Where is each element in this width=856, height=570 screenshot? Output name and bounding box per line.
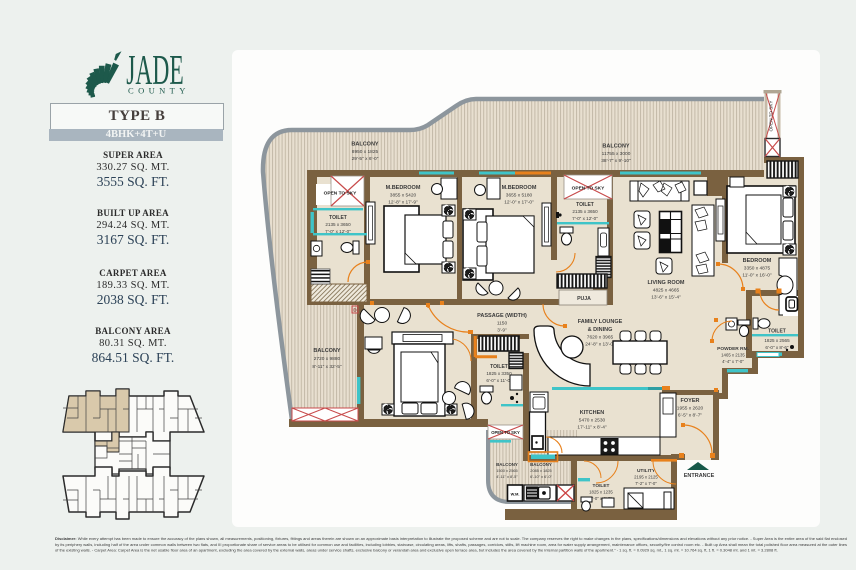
svg-text:LIVING ROOM: LIVING ROOM: [648, 280, 685, 286]
svg-text:TOILET: TOILET: [768, 329, 786, 335]
svg-text:PUJA: PUJA: [577, 296, 591, 302]
svg-text:PASSAGE (WIDTH): PASSAGE (WIDTH): [477, 313, 527, 319]
svg-text:OPEN TO SKY: OPEN TO SKY: [572, 186, 605, 192]
svg-text:1955 x 2620: 1955 x 2620: [677, 406, 704, 412]
svg-text:3855 x 5420: 3855 x 5420: [390, 193, 417, 199]
svg-text:& DINING: & DINING: [588, 327, 613, 333]
svg-text:OPEN TO SKY: OPEN TO SKY: [491, 430, 520, 435]
svg-text:BALCONY: BALCONY: [602, 144, 630, 150]
svg-text:4'-4" x 7'-0": 4'-4" x 7'-0": [722, 359, 744, 364]
svg-text:POWDER RM.: POWDER RM.: [717, 346, 749, 352]
svg-text:8950 x 1825: 8950 x 1825: [352, 149, 379, 155]
svg-text:FAMILY LOUNGE: FAMILY LOUNGE: [578, 319, 623, 325]
svg-text:29'-5" x 6'-0": 29'-5" x 6'-0": [352, 156, 379, 162]
svg-text:1825 x 1235: 1825 x 1235: [589, 490, 613, 495]
svg-text:13'-6" x 15'-4": 13'-6" x 15'-4": [651, 295, 681, 301]
svg-text:3655 x 5180: 3655 x 5180: [506, 193, 533, 199]
svg-text:OPEN TO SKY: OPEN TO SKY: [324, 191, 357, 197]
svg-text:TOILET: TOILET: [329, 215, 347, 221]
svg-text:KITCHEN: KITCHEN: [580, 410, 604, 416]
svg-text:6'-5" x 8'-7": 6'-5" x 8'-7": [678, 413, 702, 419]
svg-text:TOILET: TOILET: [576, 202, 594, 208]
svg-text:M.BEDROOM: M.BEDROOM: [502, 185, 537, 191]
svg-text:2720 x 9880: 2720 x 9880: [314, 356, 341, 362]
svg-text:2135 x 3650: 2135 x 3650: [572, 209, 598, 214]
svg-text:2135 x 3650: 2135 x 3650: [325, 222, 351, 227]
svg-text:3350 x 4875: 3350 x 4875: [744, 266, 771, 272]
svg-text:17'-11" x 8'-4": 17'-11" x 8'-4": [577, 425, 606, 431]
svg-text:BALCONY: BALCONY: [313, 348, 341, 354]
svg-text:8'-11" x 32'-5": 8'-11" x 32'-5": [312, 364, 341, 370]
svg-text:6'-0" x 11'-0": 6'-0" x 11'-0": [486, 378, 512, 383]
svg-text:5470 x 2530: 5470 x 2530: [579, 418, 606, 424]
svg-text:COUNTY: COUNTY: [128, 86, 190, 96]
svg-text:M.BEDROOM: M.BEDROOM: [386, 185, 421, 191]
svg-text:6'-10" x 6'-0": 6'-10" x 6'-0": [530, 474, 552, 479]
svg-text:7'-2" x 7'-0": 7'-2" x 7'-0": [635, 481, 657, 486]
svg-text:OPEN TO SKY: OPEN TO SKY: [769, 101, 774, 132]
svg-text:BALCONY: BALCONY: [496, 462, 518, 467]
svg-text:11755 x 3000: 11755 x 3000: [602, 151, 631, 157]
svg-text:7620 x 3965: 7620 x 3965: [587, 335, 614, 341]
svg-text:4825 x 4665: 4825 x 4665: [653, 288, 680, 294]
svg-text:TOILET: TOILET: [490, 364, 508, 370]
svg-text:3'-9": 3'-9": [497, 328, 507, 334]
svg-text:1465 x 2135: 1465 x 2135: [721, 353, 745, 358]
svg-text:TOILET: TOILET: [593, 483, 610, 489]
svg-text:2085 x 1825: 2085 x 1825: [530, 468, 551, 473]
svg-text:BALCONY: BALCONY: [351, 142, 379, 148]
svg-text:BALCONY: BALCONY: [530, 462, 552, 467]
svg-text:1825 x 3350: 1825 x 3350: [486, 371, 512, 376]
svg-text:FOYER: FOYER: [681, 398, 700, 404]
svg-text:38'-7" x 9'-10": 38'-7" x 9'-10": [601, 158, 631, 164]
svg-text:BEDROOM: BEDROOM: [743, 258, 772, 264]
svg-text:1150: 1150: [497, 321, 508, 327]
svg-text:6'-0" x 8'-6": 6'-0" x 8'-6": [765, 345, 789, 350]
svg-text:2195 x 2125: 2195 x 2125: [634, 475, 658, 480]
svg-text:1500 x 2565: 1500 x 2565: [496, 468, 517, 473]
svg-text:24'-8" x 13'-0": 24'-8" x 13'-0": [585, 342, 615, 348]
svg-text:UTILITY: UTILITY: [637, 468, 656, 474]
svg-text:4'-11" x 8'-5": 4'-11" x 8'-5": [496, 474, 518, 479]
svg-text:7'-0" x 12'-0": 7'-0" x 12'-0": [572, 216, 598, 221]
svg-text:12'-0" x 17'-0": 12'-0" x 17'-0": [504, 200, 534, 206]
svg-text:11'-0" x 16'-0": 11'-0" x 16'-0": [742, 273, 771, 279]
svg-text:W.M.: W.M.: [511, 492, 520, 497]
svg-text:ENTRANCE: ENTRANCE: [684, 473, 715, 479]
svg-text:1825 x 2565: 1825 x 2565: [764, 338, 790, 343]
svg-text:12'-8" x 17'-9": 12'-8" x 17'-9": [388, 200, 418, 206]
